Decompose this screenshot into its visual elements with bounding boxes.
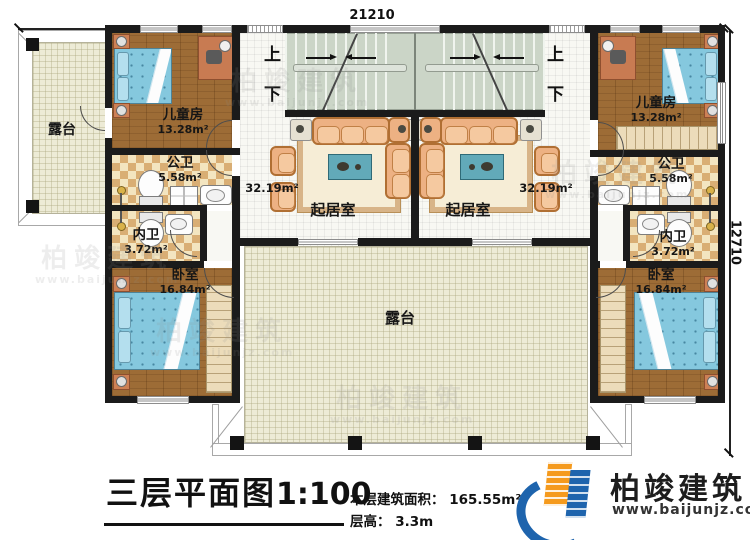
room-label-terrace-left: 露台 — [48, 122, 76, 138]
sofa-two-seat — [385, 143, 411, 199]
stair-up-label-right: 上 — [547, 40, 564, 65]
title-underline — [104, 523, 344, 526]
stair-arrow — [500, 57, 524, 59]
stair-handrail-right — [425, 64, 539, 72]
pillar — [468, 436, 482, 450]
wall — [112, 205, 207, 211]
wall — [234, 261, 240, 268]
window — [644, 396, 696, 404]
window — [717, 82, 726, 144]
pillow — [705, 77, 717, 101]
room-label-public-bath-left: 公卫 5.58m² — [158, 156, 201, 184]
plant — [296, 125, 304, 133]
wall — [626, 261, 725, 268]
wall — [590, 261, 600, 268]
lamp — [116, 105, 127, 116]
bed-children-left — [114, 48, 172, 104]
dimension-label-width: 21210 — [349, 8, 394, 23]
shower-knob — [117, 186, 126, 195]
stair-down-label-right: 下 — [547, 80, 564, 105]
room-label-bedroom-right: 卧室 16.84m² — [635, 268, 686, 296]
room-label-bedroom-left: 卧室 16.84m² — [159, 268, 210, 296]
logo: 柏竣建筑 www.baijunjz.com — [514, 458, 744, 538]
wardrobe-children-right — [616, 126, 718, 150]
sink-basin — [604, 189, 623, 202]
title-block: 三层平面图1:100 — [106, 468, 372, 514]
shower-knob — [706, 186, 715, 195]
wall — [200, 211, 207, 261]
armchair — [270, 146, 296, 176]
wall — [358, 238, 472, 246]
stair-arrowhead — [493, 54, 500, 60]
sofa-cushion — [392, 149, 410, 173]
stair-window — [350, 25, 440, 33]
room-label-public-bath-right: 公卫 5.58m² — [649, 157, 692, 185]
table-item — [337, 162, 349, 171]
terrace-door-threshold — [298, 239, 358, 245]
sofa-two-seat — [419, 143, 445, 199]
computer — [206, 50, 222, 64]
sofa-cushion — [341, 126, 364, 144]
window — [140, 25, 178, 33]
pillar — [230, 436, 244, 450]
pillow — [703, 331, 716, 363]
room-label-living-left: 起居室 — [310, 202, 355, 219]
room-label-children-left: 儿童房 13.28m² — [157, 108, 208, 136]
sofa-cushion — [493, 126, 516, 144]
stair-arrowhead — [474, 54, 481, 60]
room-label-inner-bath-right: 内卫 3.72m² — [651, 230, 694, 258]
sofa-three-seat — [440, 117, 518, 145]
floor-plan: 21210 12710 露台 露台 上 下 上 下 — [0, 0, 750, 540]
hallway-right-floor — [598, 211, 623, 261]
pillar — [26, 200, 39, 213]
stair-arrowhead — [345, 54, 352, 60]
pillow — [118, 331, 131, 363]
floor-height-text: 层高： 3.3m — [350, 510, 433, 530]
wall — [532, 238, 590, 246]
bed-bedroom-left — [114, 292, 200, 370]
pillow — [117, 77, 129, 101]
armchair — [534, 146, 560, 176]
pillow — [118, 297, 131, 329]
hallway-left-floor — [207, 211, 232, 261]
sink-basin — [642, 218, 659, 230]
sofa-cushion — [317, 126, 340, 144]
table-item — [481, 162, 493, 171]
window — [202, 25, 232, 33]
window — [247, 25, 283, 33]
terrace-door-threshold — [472, 239, 532, 245]
lamp — [116, 278, 127, 289]
shower-tray — [170, 186, 198, 206]
stair-up-label-left: 上 — [264, 40, 281, 65]
plant — [398, 125, 406, 133]
sofa-cushion — [469, 126, 492, 144]
door-opening — [105, 108, 112, 138]
stair-arrow — [450, 57, 474, 59]
wall — [623, 205, 718, 211]
plant — [424, 125, 432, 133]
sink-basin — [170, 218, 187, 230]
sofa-cushion — [541, 153, 558, 173]
sofa-cushion — [392, 174, 410, 198]
room-label-living-right: 起居室 — [445, 202, 490, 219]
wall — [105, 25, 112, 403]
blanket-fold — [639, 293, 672, 369]
logo-website: www.baijunjz.com — [612, 502, 750, 518]
pillow — [703, 297, 716, 329]
wall — [590, 25, 598, 120]
desk-lamp — [602, 40, 614, 52]
wall — [232, 25, 240, 120]
stair-down-label-left: 下 — [264, 80, 281, 105]
table-item — [469, 164, 475, 170]
terrace-bottom-floor — [244, 246, 588, 443]
terrace-bottom-railing — [212, 443, 632, 456]
shower-knob — [706, 222, 715, 231]
logo-icon — [514, 458, 610, 538]
sofa-cushion — [278, 153, 295, 173]
lamp — [707, 36, 718, 47]
stair-arrow — [352, 57, 376, 59]
window — [662, 25, 700, 33]
pillow — [705, 52, 717, 76]
sofa-cushion — [426, 174, 444, 198]
sofa-cushion — [426, 149, 444, 173]
pillar — [348, 436, 362, 450]
computer — [610, 50, 626, 64]
stair-divider-wall — [414, 33, 416, 110]
sofa-cushion — [365, 126, 388, 144]
coffee-table — [460, 154, 504, 180]
pillar — [26, 38, 39, 51]
bed-bedroom-right — [634, 292, 720, 370]
dimension-label-depth: 12710 — [728, 213, 743, 273]
window — [137, 396, 189, 404]
sofa-cushion — [445, 126, 468, 144]
plant — [526, 125, 534, 133]
blanket-fold — [164, 293, 197, 369]
stair-handrail-left — [293, 64, 407, 72]
lamp — [707, 376, 718, 387]
pillow — [117, 52, 129, 76]
lamp — [116, 376, 127, 387]
sofa-three-seat — [312, 117, 390, 145]
window — [549, 25, 585, 33]
room-label-children-right: 儿童房 13.28m² — [630, 96, 681, 124]
shower-tray — [632, 186, 660, 206]
wall — [232, 238, 298, 246]
floor-area-text: 本层建筑面积： 165.55m² — [350, 488, 521, 508]
room-label-terrace-bottom: 露台 — [385, 310, 415, 327]
area-label-living-left: 32.19m² — [245, 182, 298, 195]
pillar — [586, 436, 600, 450]
wardrobe-bedroom-right — [600, 285, 626, 393]
wardrobe-bedroom-left — [206, 285, 232, 393]
wall — [623, 211, 630, 261]
blanket-fold — [146, 49, 171, 103]
window — [610, 25, 640, 33]
page-title: 三层平面图 — [106, 474, 276, 512]
coffee-table — [328, 154, 372, 180]
lamp — [707, 278, 718, 289]
room-label-inner-bath-left: 内卫 3.72m² — [124, 228, 167, 256]
terrace-railing-post — [625, 404, 632, 444]
desk-lamp — [219, 40, 231, 52]
wall — [285, 110, 545, 117]
table-item — [355, 164, 361, 170]
sink-basin — [206, 189, 225, 202]
stair-arrow — [306, 57, 330, 59]
lamp — [116, 36, 127, 47]
area-label-living-right: 32.19m² — [519, 182, 572, 195]
stair-arrowhead — [330, 54, 337, 60]
wall — [411, 110, 419, 246]
